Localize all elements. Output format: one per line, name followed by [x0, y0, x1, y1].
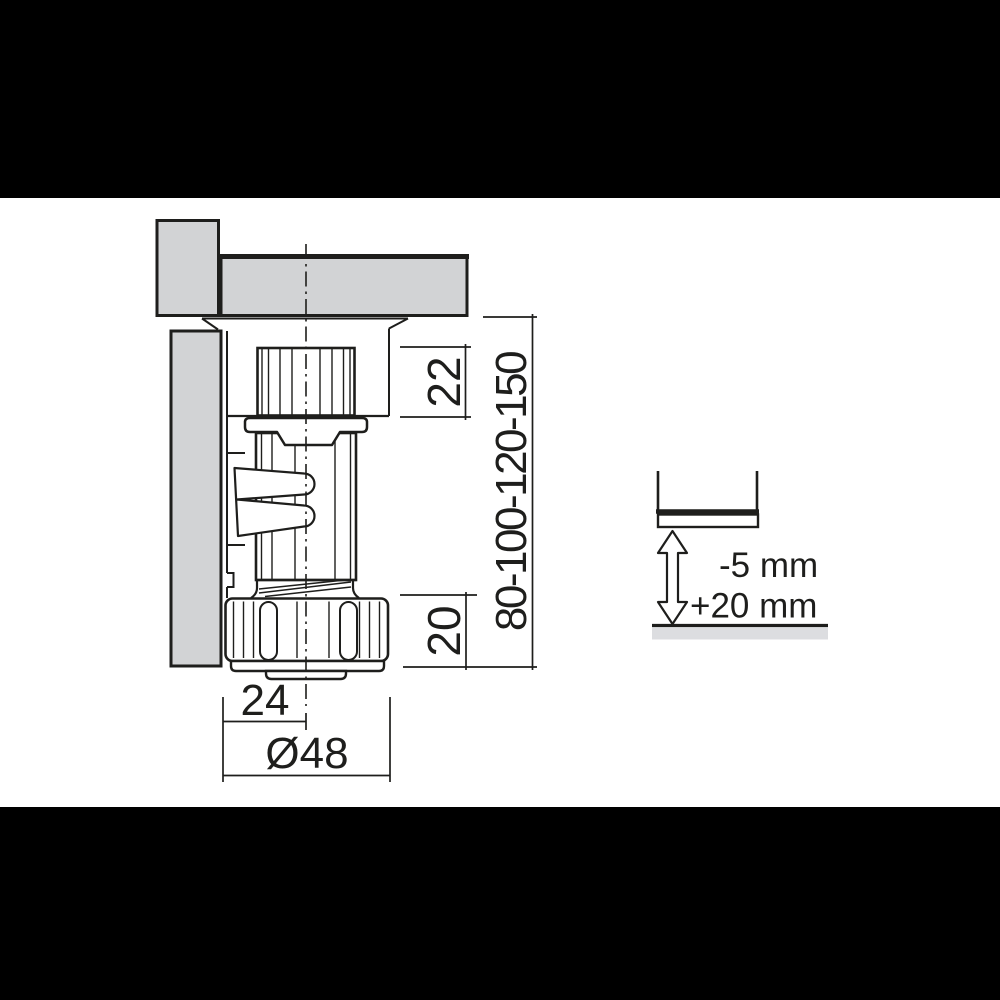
technical-drawing: 22 20 80-100-120-150 24 Ø48 -5 mm +20 mm [0, 0, 1000, 1000]
dim22-label: 22 [418, 356, 470, 407]
adjust-up-label: +20 mm [690, 587, 817, 626]
plinth-board [658, 515, 758, 528]
dim20-label: 20 [418, 605, 470, 656]
height-range-label: 80-100-120-150 [487, 352, 536, 631]
floor-strip [652, 628, 828, 640]
diameter-label: Ø48 [265, 729, 348, 778]
letterbox-top [0, 0, 1000, 198]
nut-grip-slot-right [340, 602, 357, 660]
nut-grip-slot-left [260, 602, 277, 660]
screenshot-root: 22 20 80-100-120-150 24 Ø48 -5 mm +20 mm [0, 0, 1000, 1000]
dim24-label: 24 [241, 676, 290, 725]
adjust-down-label: -5 mm [719, 546, 818, 585]
letterbox-bottom [0, 807, 1000, 1000]
foot-rim [231, 661, 384, 671]
plinth-panel [171, 331, 221, 666]
front-panel-upper [157, 221, 219, 316]
cabinet-bottom-panel [221, 256, 467, 316]
